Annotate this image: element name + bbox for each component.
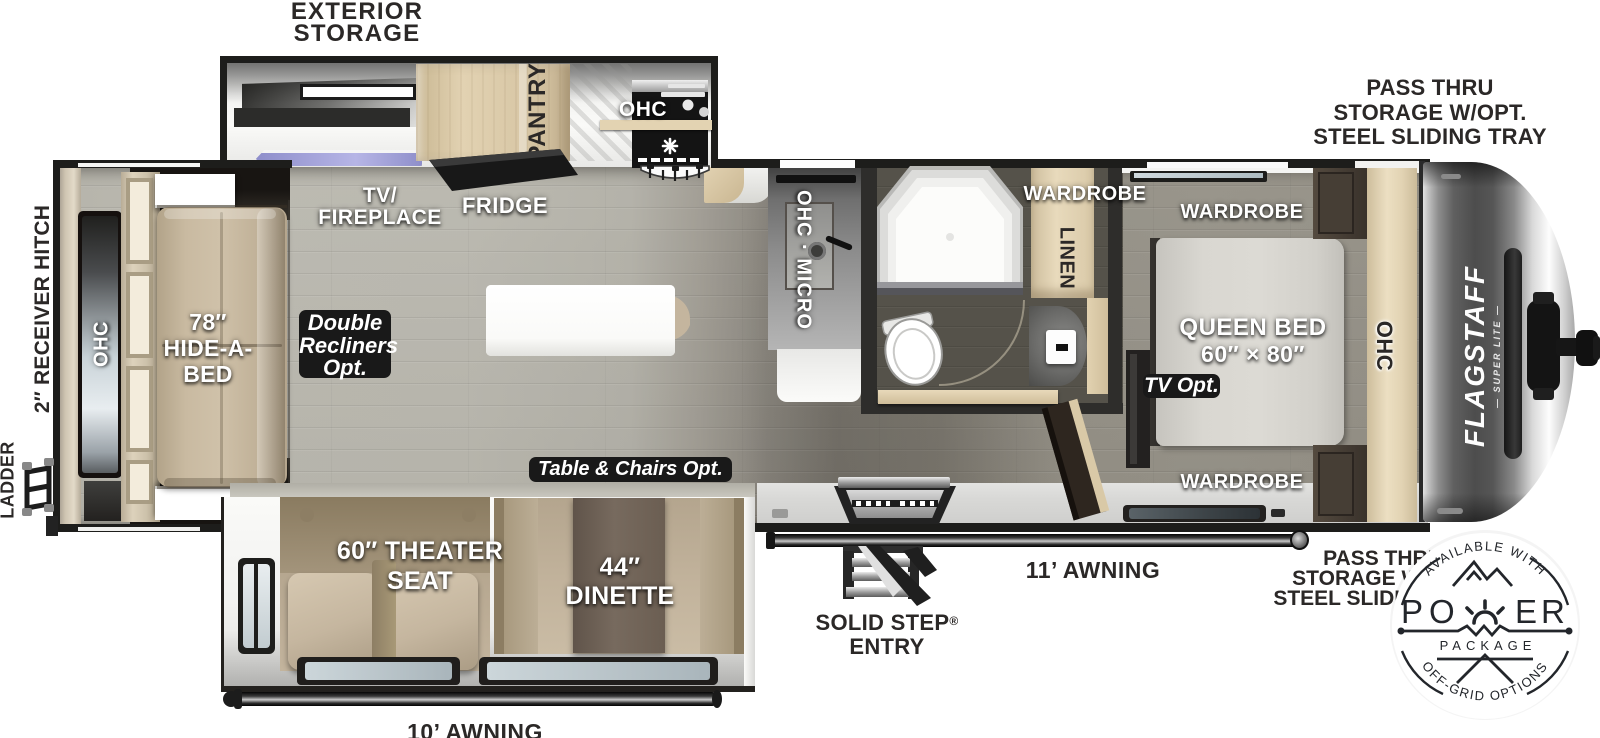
svg-text:O: O (1429, 593, 1455, 630)
svg-text:P: P (1401, 593, 1423, 630)
svg-text:R: R (1541, 593, 1565, 630)
svg-text:— SUPER LITE —: — SUPER LITE — (1492, 304, 1502, 409)
svg-text:PACKAGE: PACKAGE (1440, 638, 1537, 653)
svg-text:E: E (1515, 593, 1537, 630)
svg-text:FLAGSTAFF: FLAGSTAFF (1459, 265, 1490, 447)
